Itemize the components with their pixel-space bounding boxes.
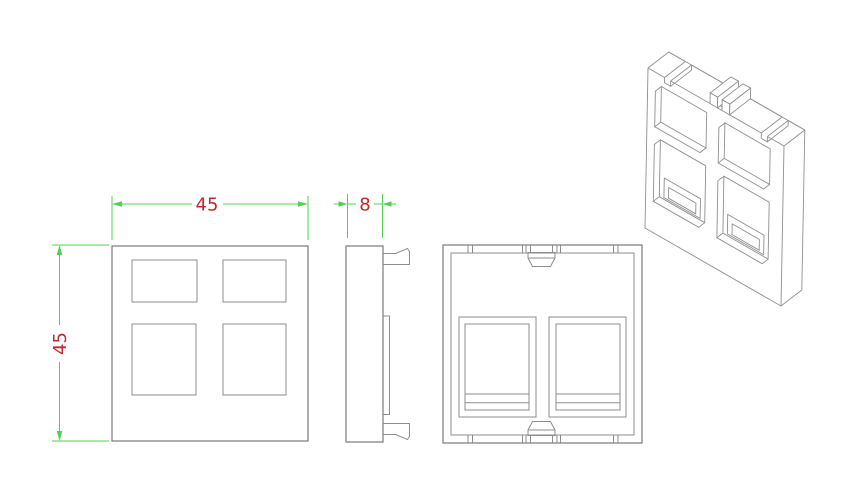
back-seam-ticks (468, 245, 618, 443)
dimension-width-label: 45 (196, 195, 219, 216)
dimension-height-label: 45 (50, 332, 71, 355)
side-body-outline (346, 246, 383, 442)
isometric-view (645, 52, 805, 306)
dimension-width: 45 (112, 195, 308, 241)
back-bottom-clip (523, 422, 561, 443)
dimension-height: 45 (50, 245, 109, 441)
front-plate-outline (112, 246, 308, 441)
side-bottom-clip (383, 424, 410, 440)
back-port-right (549, 317, 626, 417)
side-view (346, 246, 410, 442)
drawing-canvas: 45 45 8 (0, 0, 860, 500)
dimension-depth-label: 8 (359, 195, 370, 216)
dimension-depth: 8 (334, 194, 396, 238)
front-window-top-right (223, 260, 286, 302)
front-window-bottom-left (132, 324, 196, 395)
back-top-clip (523, 246, 561, 267)
back-view (443, 245, 642, 443)
back-port-left (459, 317, 536, 417)
front-view (112, 246, 308, 441)
back-plate-outline (443, 245, 642, 443)
side-top-clip (383, 249, 410, 265)
side-rib (383, 316, 390, 415)
front-window-top-left (132, 260, 197, 302)
cad-drawing: 45 45 8 (0, 0, 860, 500)
back-inner-frame (451, 253, 634, 435)
front-window-bottom-right (223, 324, 286, 395)
